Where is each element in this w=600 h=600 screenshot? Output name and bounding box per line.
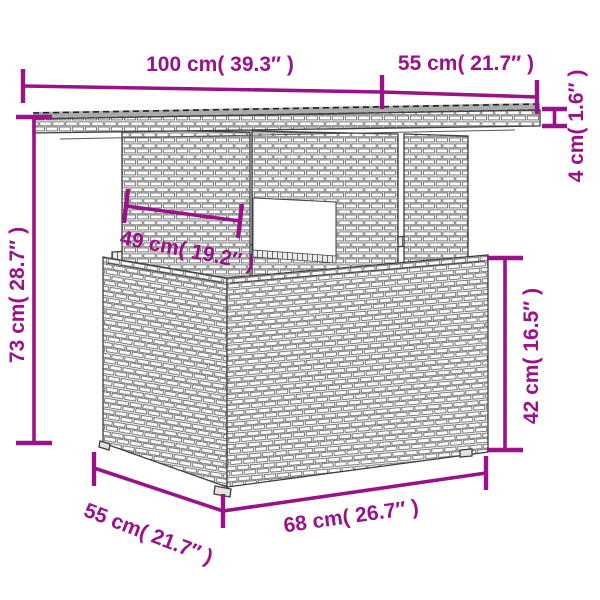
base-front-face xyxy=(227,255,488,487)
dimension-base-width-label: 68 cm( 26.7″ ) xyxy=(282,496,420,538)
foot-right xyxy=(460,449,472,457)
dimension-base-height: 42 cm( 16.5″ ) xyxy=(487,258,543,450)
dimension-top-thickness: 4 cm( 1.6″ ) xyxy=(542,70,588,183)
dimension-top-width: 100 cm( 39.3″ ) xyxy=(23,53,382,109)
dimension-top-width-label: 100 cm( 39.3″ ) xyxy=(146,53,294,76)
base-left-face xyxy=(103,257,227,487)
diagram-canvas: 100 cm( 39.3″ ) 55 cm( 21.7″ ) 4 cm( 1.6… xyxy=(0,0,600,600)
dimension-total-height: 73 cm( 28.7″ ) xyxy=(6,117,52,443)
dimension-base-depth-label: 55 cm( 21.7″ ) xyxy=(81,499,216,569)
dimension-top-depth-label: 55 cm( 21.7″ ) xyxy=(398,52,534,75)
pedestal-window xyxy=(253,198,336,259)
dimension-diagram: 100 cm( 39.3″ ) 55 cm( 21.7″ ) 4 cm( 1.6… xyxy=(0,0,600,600)
dimension-total-height-label: 73 cm( 28.7″ ) xyxy=(6,227,29,363)
furniture-drawing xyxy=(33,103,540,497)
dimension-base-height-label: 42 cm( 16.5″ ) xyxy=(520,288,543,424)
dimension-top-thickness-label: 4 cm( 1.6″ ) xyxy=(565,70,588,183)
